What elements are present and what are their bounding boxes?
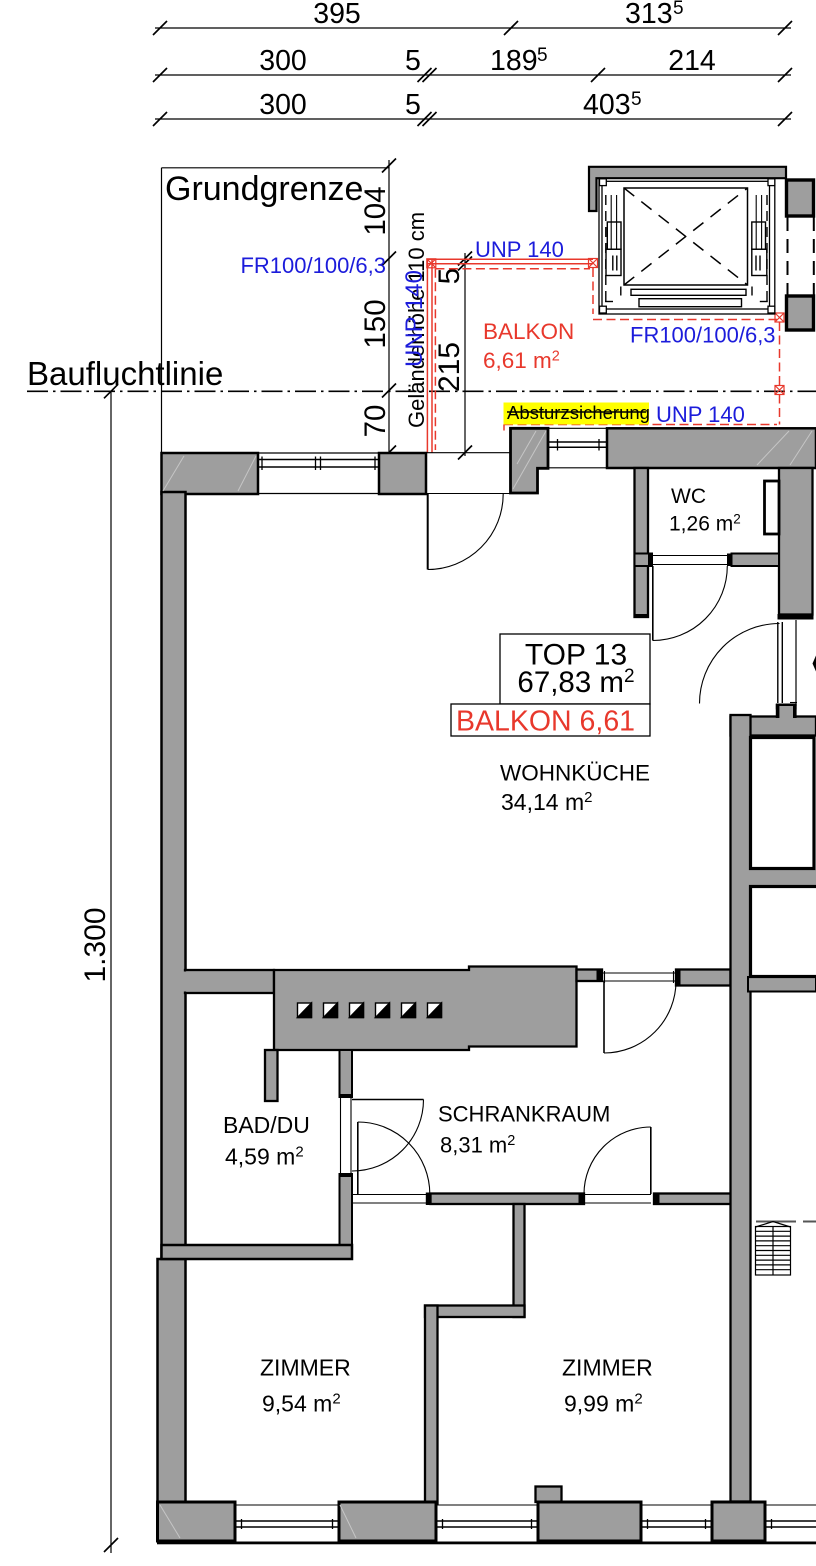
svg-text:1,26 m2: 1,26 m2 (669, 512, 741, 536)
svg-text:BALKON 6,61: BALKON 6,61 (456, 706, 635, 738)
svg-text:395: 395 (313, 0, 361, 30)
svg-text:67,83 m2: 67,83 m2 (517, 666, 634, 699)
svg-text:BAD/DU: BAD/DU (223, 1112, 310, 1138)
svg-text:BALKON: BALKON (483, 319, 574, 344)
svg-text:UNP 140: UNP 140 (656, 402, 745, 427)
svg-text:5: 5 (673, 0, 684, 19)
svg-text:ZIMMER: ZIMMER (260, 1355, 351, 1381)
svg-text:5: 5 (405, 45, 421, 77)
svg-text:300: 300 (259, 89, 307, 121)
svg-text:403: 403 (583, 89, 631, 121)
svg-text:6,61 m2: 6,61 m2 (483, 348, 560, 373)
svg-text:34,14 m2: 34,14 m2 (501, 789, 592, 815)
svg-text:WOHNKÜCHE: WOHNKÜCHE (500, 761, 650, 786)
svg-text:150: 150 (359, 299, 392, 348)
svg-text:5: 5 (631, 89, 642, 110)
svg-text:9,99 m2: 9,99 m2 (564, 1391, 643, 1417)
svg-text:SCHRANKRAUM: SCHRANKRAUM (438, 1102, 610, 1127)
svg-text:104: 104 (359, 186, 392, 235)
svg-text:ZIMMER: ZIMMER (562, 1355, 653, 1381)
svg-text:Grundgrenze: Grundgrenze (165, 170, 363, 208)
svg-text:5: 5 (433, 268, 466, 285)
svg-text:FR100/100/6,3: FR100/100/6,3 (240, 253, 386, 278)
svg-text:189: 189 (490, 45, 538, 77)
svg-text:214: 214 (668, 45, 716, 77)
svg-text:UNP 140: UNP 140 (475, 237, 564, 262)
svg-text:313: 313 (625, 0, 673, 30)
svg-text:9,54 m2: 9,54 m2 (262, 1391, 341, 1417)
svg-text:1.300: 1.300 (79, 907, 112, 982)
svg-text:WC: WC (671, 485, 706, 508)
svg-text:FR100/100/6,3: FR100/100/6,3 (630, 323, 776, 348)
svg-text:70: 70 (359, 405, 392, 438)
svg-text:215: 215 (433, 342, 466, 392)
svg-text:5: 5 (537, 45, 548, 66)
svg-text:4,59 m2: 4,59 m2 (225, 1144, 304, 1170)
svg-text:5: 5 (405, 89, 421, 121)
svg-text:Baufluchtlinie: Baufluchtlinie (27, 355, 223, 392)
svg-text:UNP 140: UNP 140 (401, 270, 428, 367)
svg-text:8,31 m2: 8,31 m2 (440, 1133, 515, 1158)
svg-text:300: 300 (259, 45, 307, 77)
